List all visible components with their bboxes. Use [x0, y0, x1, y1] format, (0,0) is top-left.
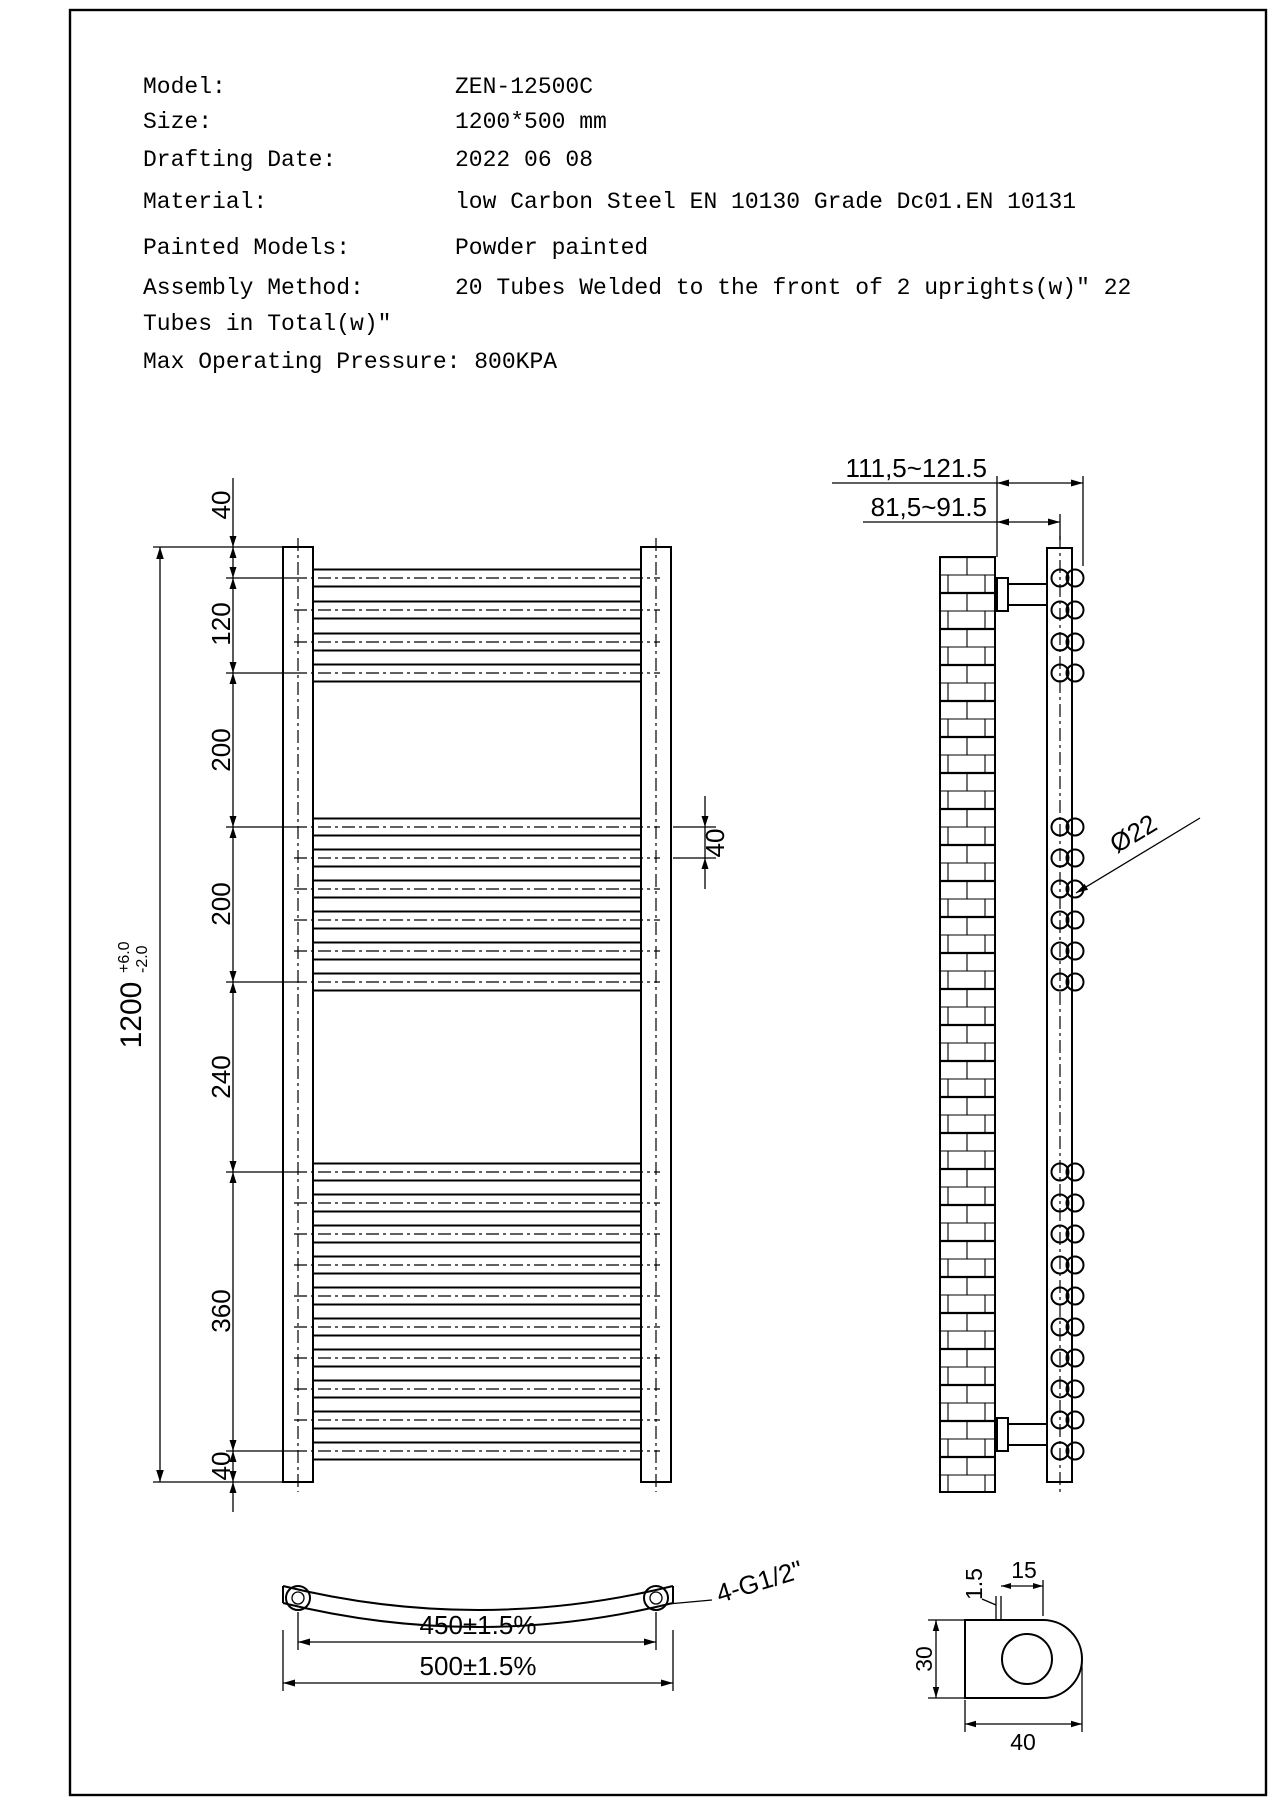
arrowhead [230, 1161, 237, 1172]
wall-bracket-top [997, 578, 1047, 611]
dim-120: 120 [206, 602, 236, 645]
material-value: low Carbon Steel EN 10130 Grade Dc01.EN … [455, 189, 1076, 215]
arrowhead [230, 827, 237, 838]
arrowhead [230, 1482, 237, 1493]
wall-section [940, 557, 995, 1492]
model-value: ZEN-12500C [455, 74, 593, 100]
assembly-method-wrap: Tubes in Total(w)" [143, 311, 391, 337]
max-pressure-line: Max Operating Pressure: 800KPA [143, 349, 557, 375]
curved-tube-top-edge [283, 1586, 673, 1610]
dim-1200-tol-minus: -2.0 [134, 945, 151, 973]
upright-cross-section [965, 1620, 1082, 1698]
arrowhead [997, 519, 1009, 526]
arrowhead [230, 816, 237, 827]
arrowhead [1048, 519, 1060, 526]
dim-200-a: 200 [206, 728, 236, 771]
arrowhead [230, 567, 237, 578]
overall-dim-text: 1200 +6.0 -2.0 [115, 941, 151, 1048]
connection-callout: 4-G1/2" [713, 1554, 807, 1609]
arrowhead [230, 971, 237, 982]
painted-models-value: Powder painted [455, 235, 648, 261]
dim-240: 240 [206, 1055, 236, 1098]
bottom-view: 4-G1/2" 450±1.5% 500±1.5% [283, 1554, 806, 1691]
size-label: Size: [143, 109, 212, 135]
arrowhead [1071, 480, 1083, 487]
assembly-method-label: Assembly Method: [143, 275, 364, 301]
dim-360: 360 [206, 1289, 236, 1332]
arrowhead [156, 547, 164, 559]
arrowhead [230, 1440, 237, 1451]
diameter-callout: Ø22 [1104, 808, 1162, 859]
arrowhead [230, 578, 237, 589]
dim-450: 450±1.5% [420, 1610, 537, 1640]
arrowhead [230, 982, 237, 993]
wall-bracket-bottom [997, 1418, 1047, 1451]
tube-array [294, 570, 660, 1460]
technical-drawing: Model: ZEN-12500C Size: 1200*500 mm Draf… [0, 0, 1273, 1800]
arrowhead [997, 480, 1009, 487]
drawing-page: Model: ZEN-12500C Size: 1200*500 mm Draf… [0, 0, 1273, 1800]
dim-wall-to-front: 111,5~121.5 [846, 453, 987, 483]
dim-1200-tol-plus: +6.0 [116, 941, 133, 973]
dim-40-gap: 40 [700, 829, 730, 858]
assembly-method-value: 20 Tubes Welded to the front of 2 uprigh… [455, 275, 1131, 301]
size-value: 1200*500 mm [455, 109, 607, 135]
side-view: 111,5~121.5 81,5~91.5 Ø22 [832, 453, 1200, 1492]
arrowhead [298, 1639, 310, 1646]
model-label: Model: [143, 74, 226, 100]
connection-leader-line [668, 1600, 712, 1604]
title-block: Model: ZEN-12500C Size: 1200*500 mm Draf… [143, 74, 1131, 375]
arrowhead [933, 1620, 939, 1631]
dim-connection: 4-G1/2" [713, 1554, 807, 1609]
dim-40-bottom: 40 [206, 1452, 236, 1481]
material-label: Material: [143, 189, 267, 215]
arrowhead [1001, 1583, 1011, 1589]
arrowhead [702, 858, 709, 869]
arrowhead [1033, 1583, 1043, 1589]
arrowhead [230, 662, 237, 673]
drafting-date-value: 2022 06 08 [455, 147, 593, 173]
detail-view: 1.5 15 30 40 [911, 1557, 1082, 1755]
arrowhead [283, 1680, 295, 1687]
dim-30: 30 [911, 1646, 937, 1672]
dim-wall-to-center: 81,5~91.5 [871, 492, 987, 522]
dim-1200: 1200 [115, 982, 148, 1049]
tube-cross-sections [1052, 570, 1084, 1460]
arrowhead [230, 536, 237, 547]
connection-hole-left [292, 1592, 304, 1604]
arrowhead [156, 1470, 164, 1482]
front-view: 1200 +6.0 -2.0 40 120 200 200 240 360 40… [115, 478, 730, 1512]
arrowhead [230, 1172, 237, 1183]
dim-500: 500±1.5% [420, 1651, 537, 1681]
dim-40-width: 40 [1010, 1729, 1036, 1755]
dim-15: 15 [1011, 1557, 1037, 1583]
arrowhead [230, 673, 237, 684]
arrowhead [933, 1687, 939, 1698]
tube-hole [1002, 1634, 1052, 1684]
dim-40-top: 40 [206, 491, 236, 520]
dim-wall-thickness: 1.5 [961, 1568, 987, 1600]
dim-tube-diameter: Ø22 [1104, 808, 1162, 859]
arrowhead [965, 1721, 976, 1727]
arrowhead [661, 1680, 673, 1687]
arrowhead [230, 547, 237, 558]
painted-models-label: Painted Models: [143, 235, 350, 261]
arrowhead [1071, 1721, 1082, 1727]
arrowhead [702, 816, 709, 827]
connection-hole-right [650, 1592, 662, 1604]
dim-200-b: 200 [206, 882, 236, 925]
arrowhead [644, 1639, 656, 1646]
drafting-date-label: Drafting Date: [143, 147, 336, 173]
